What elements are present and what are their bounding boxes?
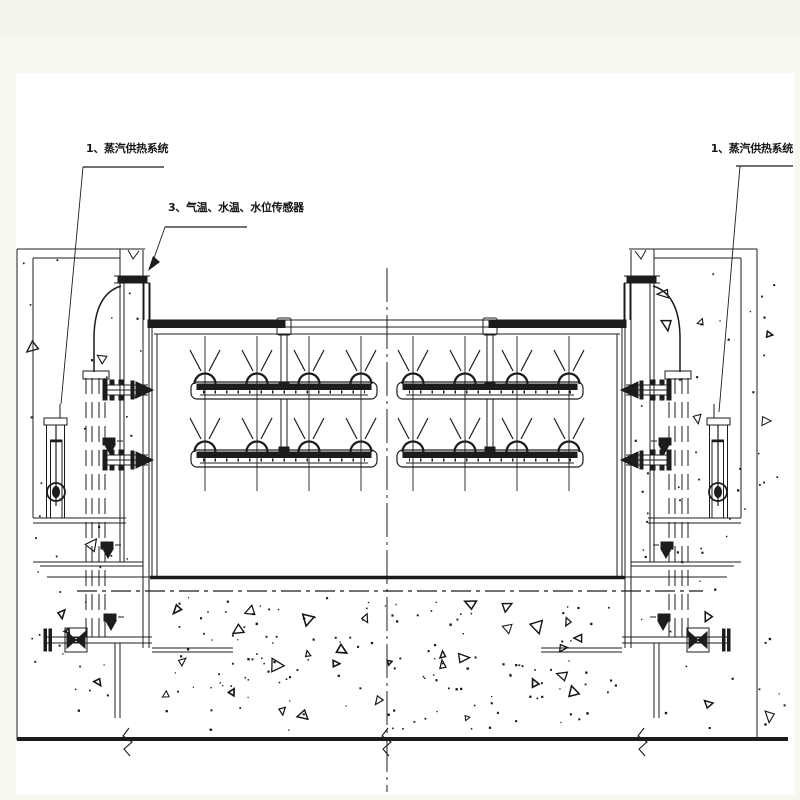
steam-supply-label-right: 1、蒸汽供热系统 [711,141,794,155]
steam-supply-label-left: 1、蒸汽供热系统 [86,141,169,155]
margin-top-band [0,0,800,38]
engineering-drawing: 1、蒸汽供热系统 3、气温、水温、水位传感器 1、蒸汽供热系统 [0,0,800,800]
sensors-label: 3、气温、水温、水位传感器 [168,200,305,214]
drawing-canvas: 1、蒸汽供热系统 3、气温、水温、水位传感器 1、蒸汽供热系统 [0,0,800,800]
